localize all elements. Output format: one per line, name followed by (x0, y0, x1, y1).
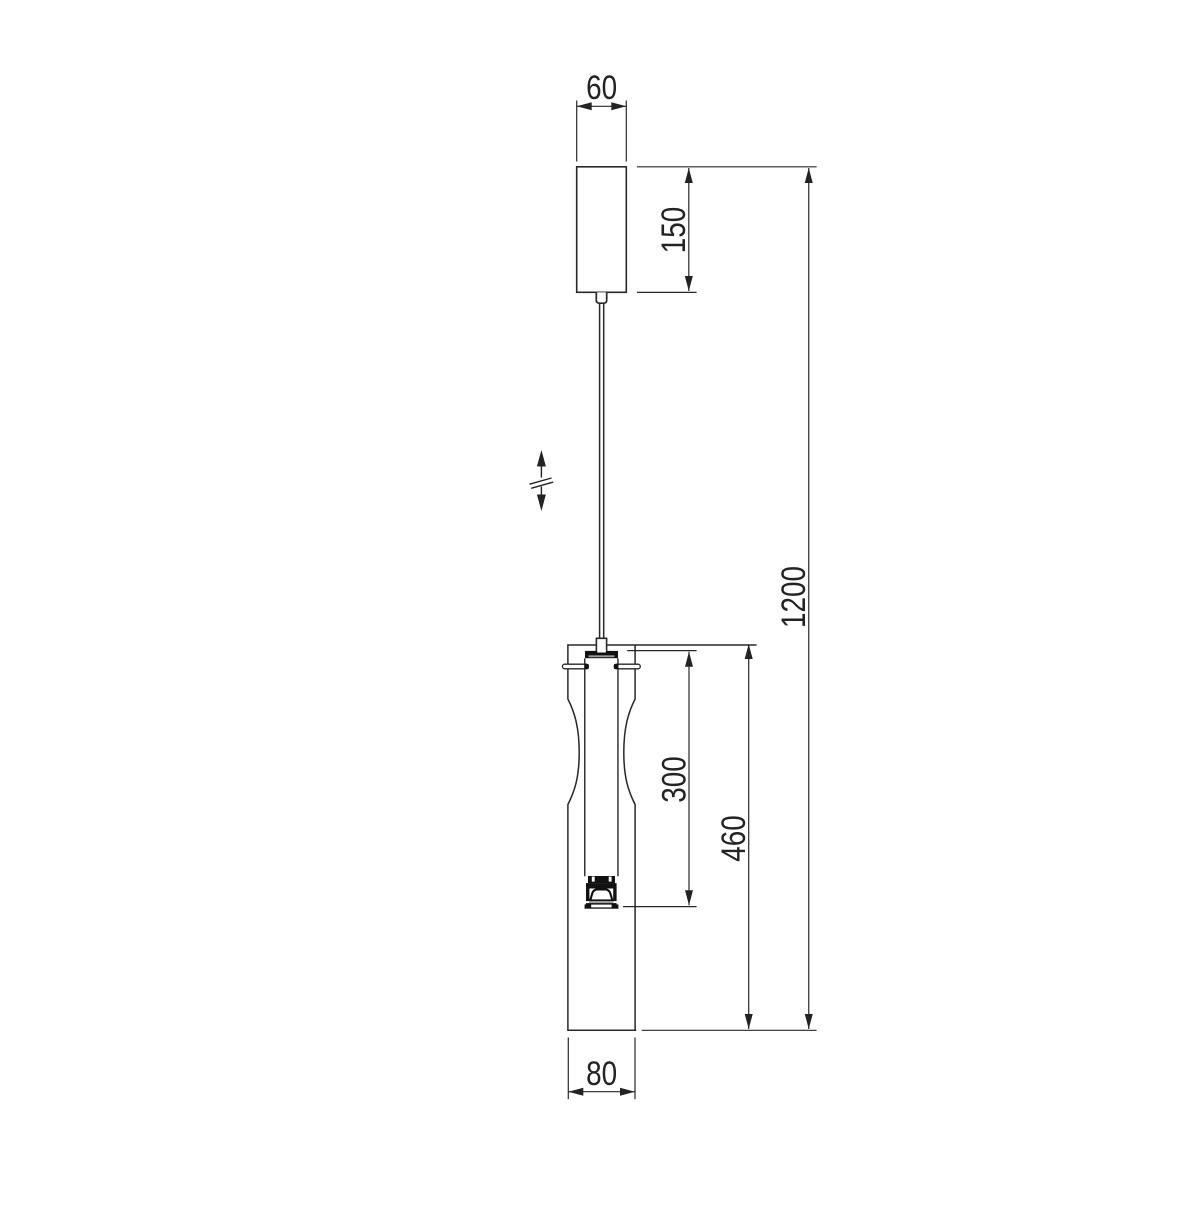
svg-text:300: 300 (655, 756, 693, 803)
svg-text:460: 460 (714, 815, 752, 862)
svg-text:1200: 1200 (774, 566, 812, 628)
svg-text:60: 60 (586, 68, 617, 106)
svg-text:150: 150 (654, 207, 692, 254)
svg-text:80: 80 (586, 1054, 617, 1092)
